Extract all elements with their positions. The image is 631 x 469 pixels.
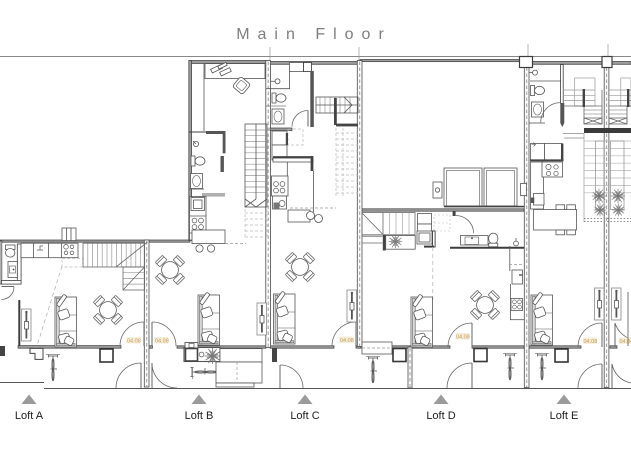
svg-text:Loft A: Loft A	[15, 410, 44, 422]
svg-text:Loft D: Loft D	[426, 410, 455, 422]
svg-text:Loft C: Loft C	[290, 410, 319, 422]
svg-text:Loft B: Loft B	[185, 410, 214, 422]
svg-text:Main Floor: Main Floor	[236, 26, 392, 43]
svg-text:Loft E: Loft E	[550, 410, 579, 422]
